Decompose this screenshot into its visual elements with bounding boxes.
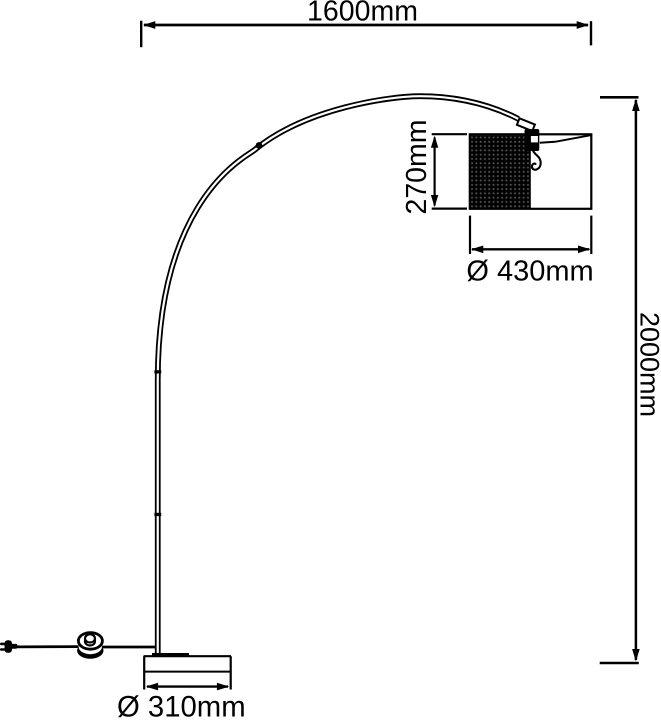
svg-text:270mm: 270mm: [401, 119, 433, 214]
svg-text:Ø 430mm: Ø 430mm: [466, 256, 593, 288]
svg-text:Ø 310mm: Ø 310mm: [117, 691, 246, 720]
svg-text:1600mm: 1600mm: [307, 0, 418, 28]
svg-text:2000mm: 2000mm: [635, 312, 661, 417]
